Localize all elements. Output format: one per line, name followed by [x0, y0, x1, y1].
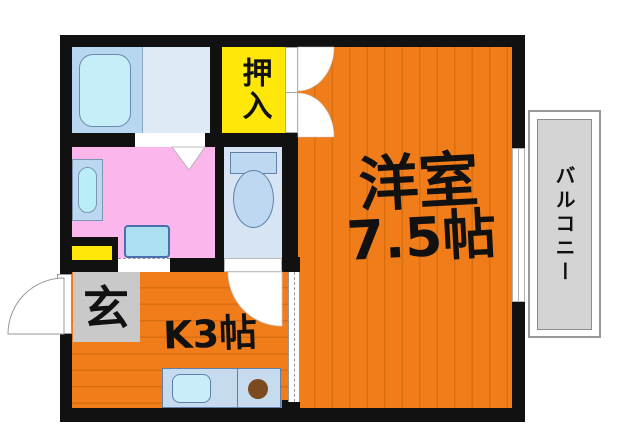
entrance-door-swing-arc — [8, 278, 64, 334]
bathroom-door-opening — [135, 133, 205, 147]
closet-door-track — [285, 47, 298, 133]
toilet-bowl-icon — [233, 170, 274, 228]
western-room-size: 7.5帖 — [345, 208, 497, 267]
entrance-door-leaf — [57, 274, 72, 334]
stove-burner-icon — [248, 379, 268, 399]
western-room-label: 洋室 7.5帖 — [325, 139, 516, 278]
window-icon — [512, 148, 525, 302]
closet-door-divider — [286, 92, 297, 93]
partition-wall-stub-bottom — [282, 400, 300, 422]
washing-machine-pan-icon — [124, 225, 170, 258]
toilet-right-wall — [282, 133, 298, 272]
toilet-door-leaf — [224, 258, 282, 272]
kitchen-sink-icon — [172, 374, 211, 403]
partition-wall-stub-top — [282, 257, 300, 272]
sliding-door-track-line — [294, 272, 295, 402]
washroom-door-opening — [118, 258, 170, 272]
entrance-label: 玄 — [76, 274, 136, 336]
shoe-cabinet-icon — [72, 246, 112, 260]
balcony-label: バルコニー — [537, 121, 592, 328]
counter-divider — [237, 369, 238, 407]
bathtub-icon — [79, 54, 131, 127]
vanity-bowl-icon — [78, 167, 97, 213]
kitchen-label: K3帖 — [147, 304, 273, 356]
window-sash-line — [518, 149, 519, 301]
closet-label: 押入 — [222, 49, 285, 131]
floorplan-canvas: 洋室 7.5帖 K3帖 玄 押入 バルコニー — [0, 0, 640, 444]
sliding-door-icon — [288, 272, 300, 402]
bathroom-drying-area — [142, 47, 210, 133]
